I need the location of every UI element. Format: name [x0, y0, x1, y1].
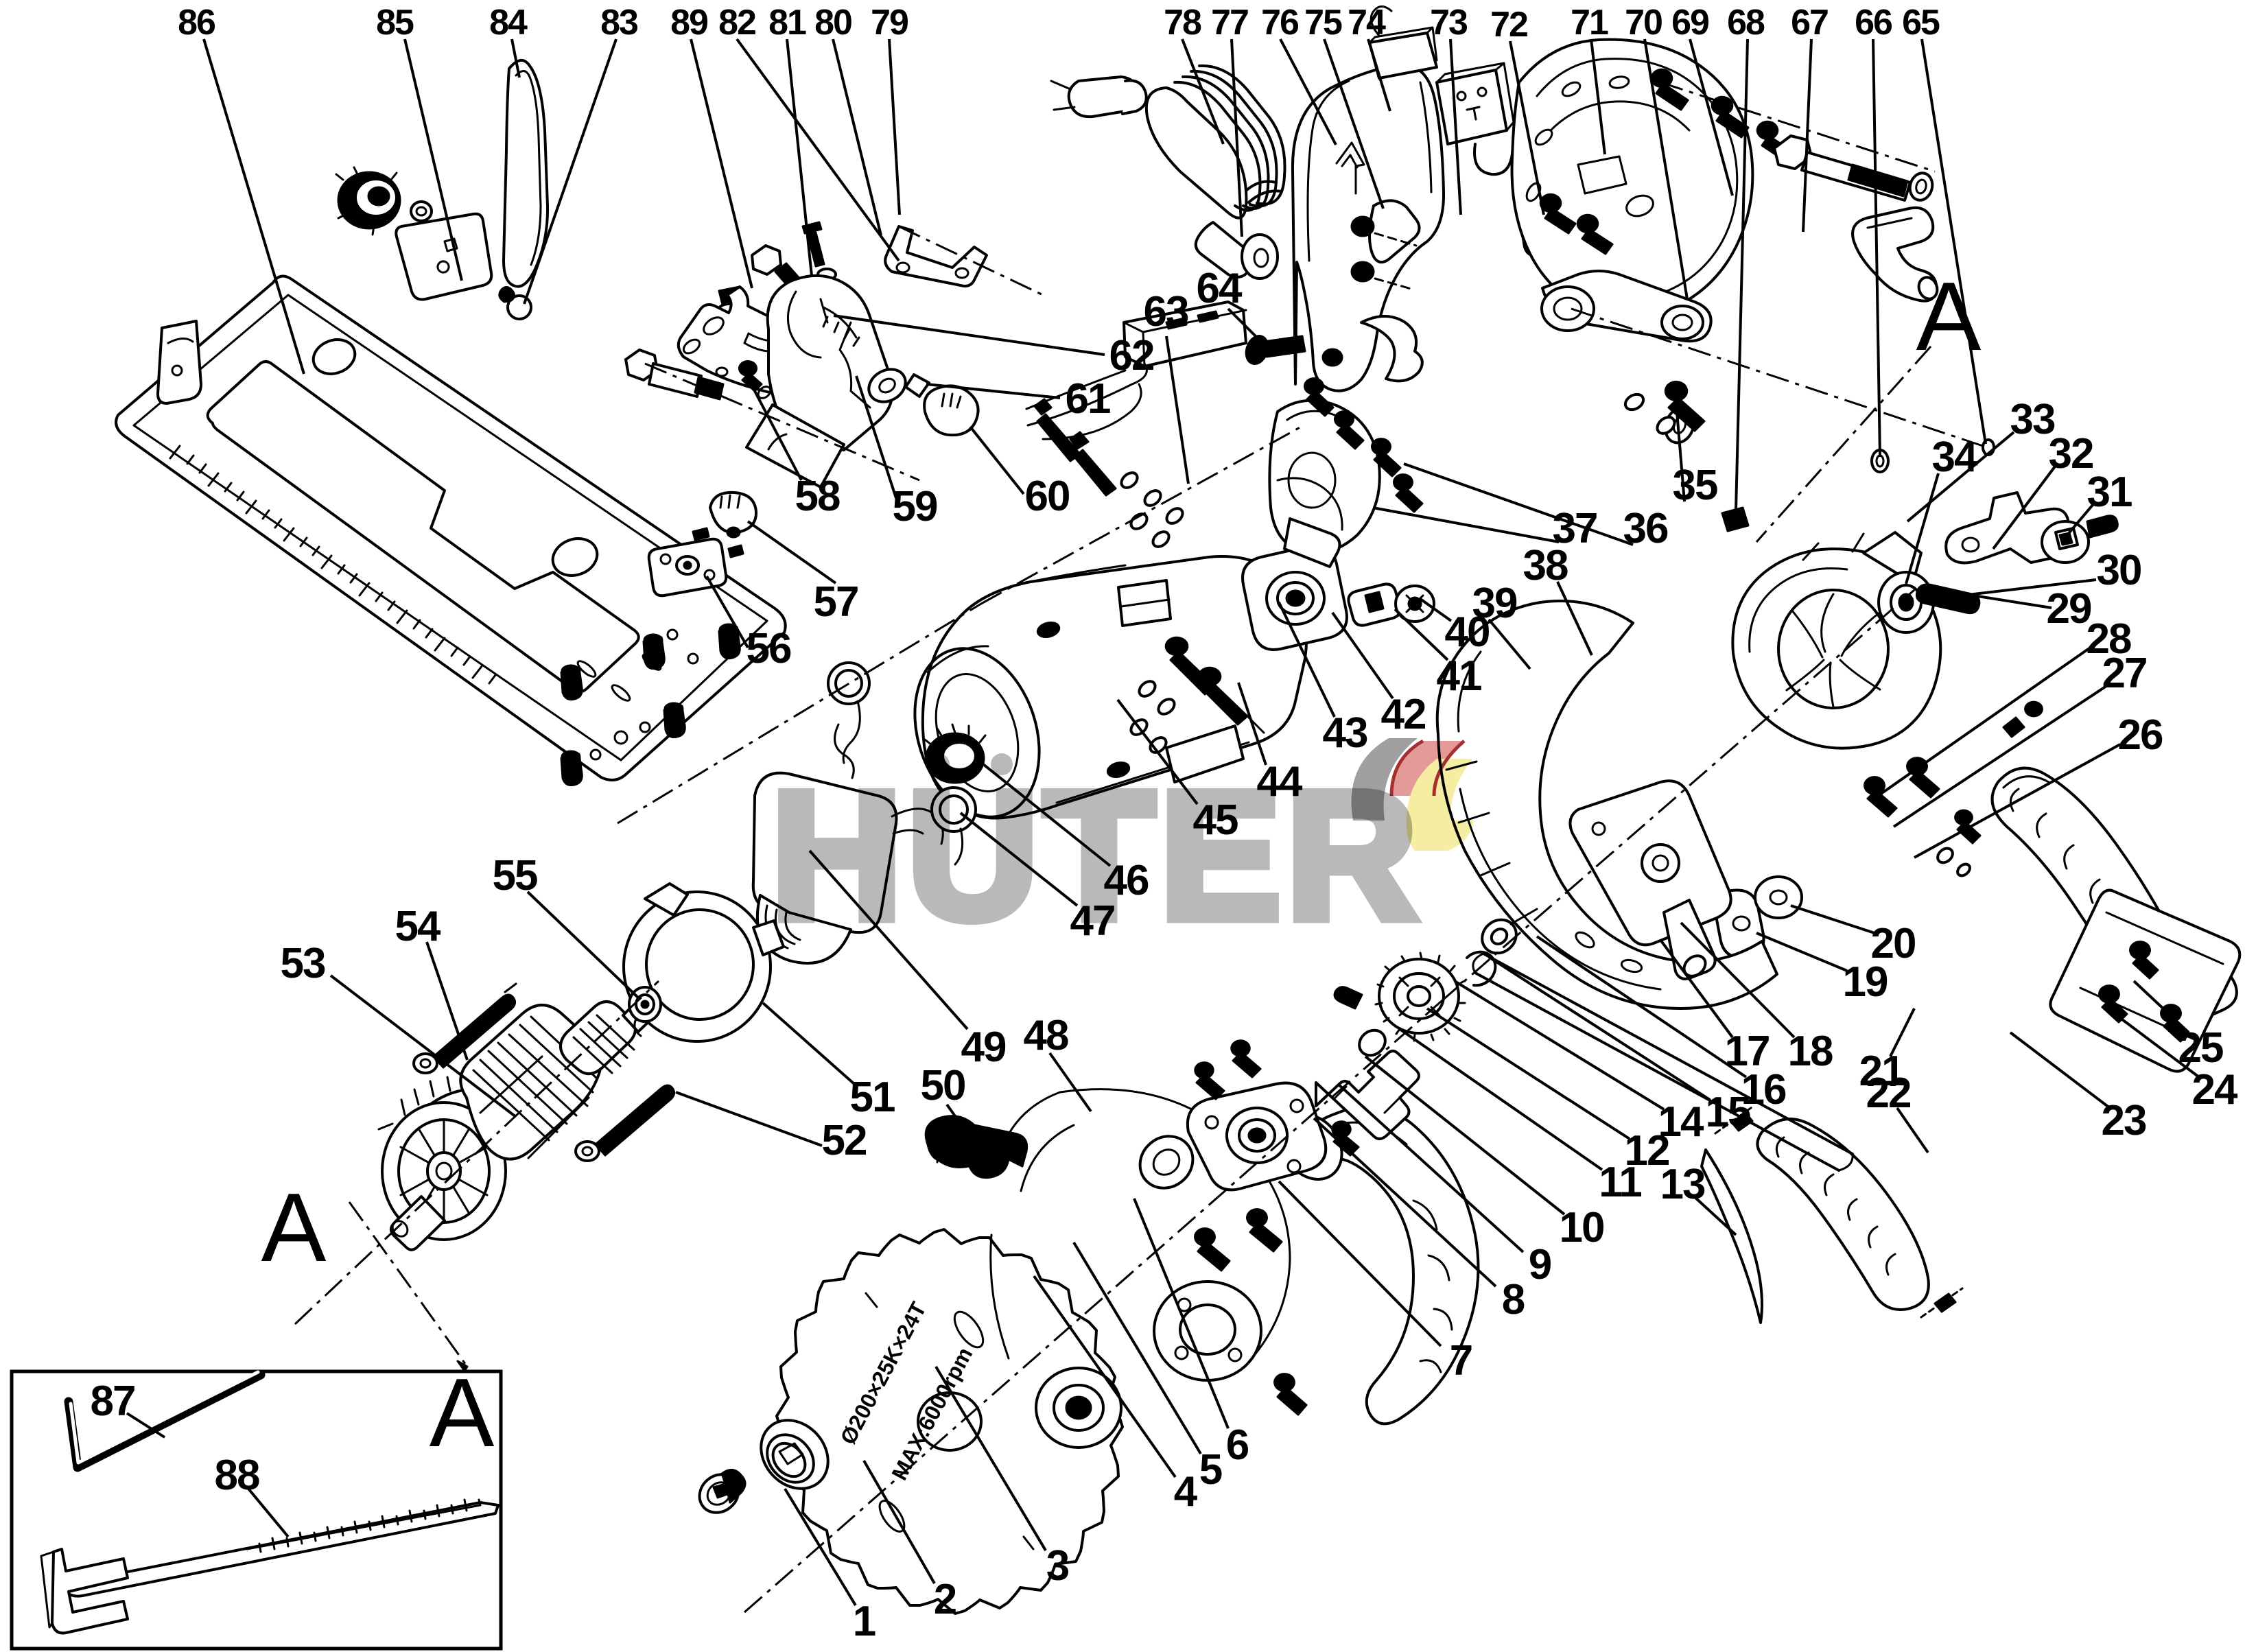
svg-text:53: 53	[281, 940, 325, 987]
svg-text:54: 54	[395, 903, 441, 950]
svg-text:89: 89	[670, 3, 707, 43]
svg-text:24: 24	[2192, 1066, 2238, 1113]
svg-text:72: 72	[1490, 5, 1527, 45]
svg-text:67: 67	[1791, 3, 1828, 43]
svg-text:49: 49	[961, 1024, 1006, 1071]
svg-text:79: 79	[871, 3, 908, 43]
svg-text:58: 58	[795, 473, 840, 520]
svg-text:60: 60	[1025, 473, 1070, 520]
svg-text:19: 19	[1843, 958, 1888, 1006]
svg-text:59: 59	[893, 483, 937, 530]
svg-text:71: 71	[1571, 3, 1608, 43]
svg-text:74: 74	[1348, 3, 1386, 43]
svg-text:18: 18	[1788, 1028, 1833, 1075]
svg-text:83: 83	[600, 3, 638, 43]
svg-text:61: 61	[1066, 375, 1110, 423]
svg-text:68: 68	[1727, 3, 1765, 43]
svg-text:85: 85	[376, 3, 414, 43]
svg-text:39: 39	[1472, 580, 1517, 627]
svg-text:76: 76	[1261, 3, 1299, 43]
svg-text:87: 87	[91, 1378, 135, 1425]
svg-text:5: 5	[1199, 1446, 1222, 1494]
svg-text:52: 52	[822, 1117, 867, 1164]
svg-text:66: 66	[1855, 3, 1892, 43]
svg-text:80: 80	[814, 3, 851, 43]
svg-text:57: 57	[814, 578, 858, 626]
svg-text:9: 9	[1529, 1241, 1551, 1288]
svg-text:36: 36	[1623, 505, 1668, 552]
svg-text:88: 88	[215, 1452, 259, 1499]
svg-text:42: 42	[1381, 691, 1426, 738]
svg-text:3: 3	[1046, 1542, 1069, 1590]
svg-text:26: 26	[2118, 711, 2163, 759]
svg-text:30: 30	[2097, 547, 2141, 594]
svg-text:25: 25	[2178, 1024, 2223, 1072]
svg-text:75: 75	[1304, 3, 1342, 43]
svg-text:27: 27	[2102, 650, 2147, 697]
svg-text:41: 41	[1437, 652, 1481, 700]
svg-text:2: 2	[934, 1576, 956, 1623]
svg-text:35: 35	[1673, 462, 1717, 509]
svg-text:78: 78	[1164, 3, 1201, 43]
svg-text:70: 70	[1625, 3, 1662, 43]
svg-text:50: 50	[921, 1062, 965, 1109]
svg-text:82: 82	[718, 3, 755, 43]
svg-text:65: 65	[1902, 3, 1940, 43]
svg-text:64: 64	[1197, 265, 1243, 312]
svg-text:62: 62	[1109, 332, 1154, 379]
svg-text:10: 10	[1560, 1204, 1604, 1251]
svg-text:11: 11	[1599, 1159, 1641, 1206]
svg-text:48: 48	[1024, 1012, 1068, 1059]
svg-text:63: 63	[1144, 288, 1188, 335]
svg-text:7: 7	[1450, 1337, 1472, 1384]
svg-text:23: 23	[2102, 1097, 2146, 1144]
svg-text:4: 4	[1174, 1468, 1198, 1515]
svg-text:1: 1	[853, 1598, 875, 1645]
svg-text:77: 77	[1211, 3, 1248, 43]
svg-text:69: 69	[1671, 3, 1708, 43]
svg-text:A: A	[261, 1173, 327, 1282]
svg-text:15: 15	[1706, 1089, 1750, 1136]
svg-text:55: 55	[493, 852, 537, 899]
svg-text:37: 37	[1553, 505, 1597, 552]
svg-text:21: 21	[1859, 1048, 1904, 1095]
svg-text:51: 51	[850, 1074, 895, 1121]
svg-text:84: 84	[489, 3, 528, 43]
svg-text:56: 56	[747, 625, 791, 672]
svg-text:A: A	[1916, 262, 1982, 371]
svg-text:8: 8	[1502, 1276, 1525, 1323]
svg-text:31: 31	[2087, 469, 2132, 516]
svg-text:34: 34	[1932, 434, 1978, 481]
svg-text:29: 29	[2047, 585, 2091, 633]
svg-text:6: 6	[1226, 1421, 1249, 1469]
svg-text:HUTER: HUTER	[771, 754, 1422, 956]
svg-text:A: A	[430, 1358, 495, 1467]
svg-text:73: 73	[1430, 3, 1468, 43]
svg-text:86: 86	[178, 3, 215, 43]
svg-text:81: 81	[768, 3, 806, 43]
svg-text:43: 43	[1323, 709, 1367, 757]
